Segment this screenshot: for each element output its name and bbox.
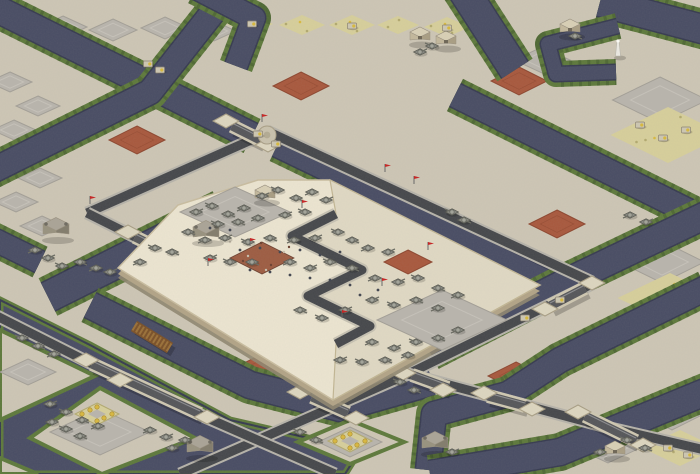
infantry-unit[interactable] — [359, 294, 362, 297]
infantry-unit[interactable] — [249, 269, 252, 272]
infantry-unit[interactable] — [309, 277, 312, 280]
infantry-unit[interactable] — [329, 279, 332, 282]
infantry-unit[interactable] — [339, 251, 342, 254]
infantry-unit[interactable] — [229, 229, 232, 232]
truck-unit[interactable] — [684, 452, 695, 459]
infantry-unit[interactable] — [239, 249, 242, 252]
truck-unit[interactable] — [521, 315, 532, 322]
infantry-unit[interactable] — [299, 249, 302, 252]
infantry-unit[interactable] — [319, 254, 322, 257]
truck-unit[interactable] — [248, 21, 259, 28]
infantry-unit[interactable] — [349, 284, 352, 287]
infantry-unit[interactable] — [209, 227, 212, 230]
truck-unit[interactable] — [254, 131, 265, 138]
truck-unit[interactable] — [348, 23, 359, 30]
truck-unit[interactable] — [443, 25, 454, 32]
truck-unit[interactable] — [664, 445, 675, 452]
game-viewport[interactable] — [0, 0, 700, 474]
truck-unit[interactable] — [682, 127, 693, 134]
infantry-unit[interactable] — [289, 274, 292, 277]
map-canvas[interactable] — [0, 0, 700, 474]
infantry-unit[interactable] — [259, 247, 262, 250]
truck-unit[interactable] — [659, 135, 670, 142]
infantry-unit[interactable] — [377, 289, 380, 292]
truck-unit[interactable] — [556, 297, 567, 304]
infantry-unit[interactable] — [279, 251, 282, 254]
truck-unit[interactable] — [272, 141, 283, 148]
infantry-unit[interactable] — [269, 271, 272, 274]
truck-unit[interactable] — [636, 122, 647, 129]
